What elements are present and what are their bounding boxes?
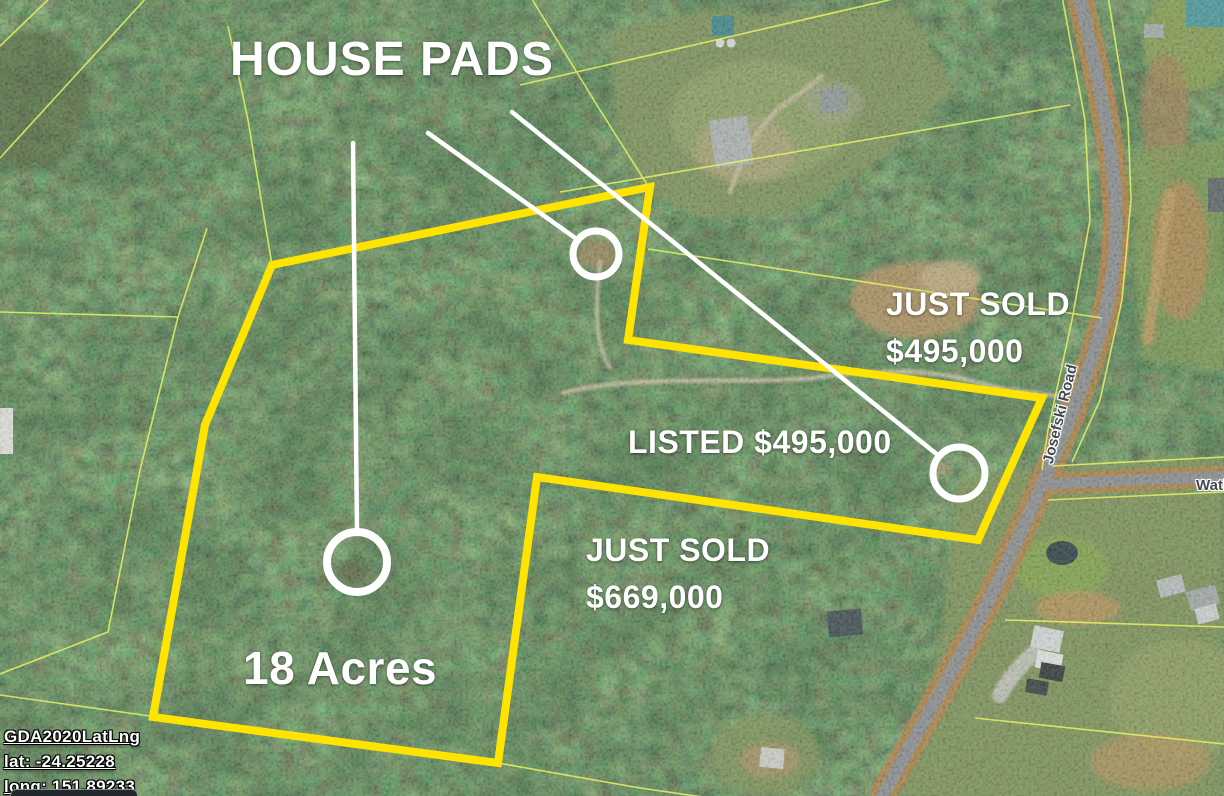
- annotation-just-sold-669k: JUST SOLD $669,000: [586, 527, 770, 621]
- annotation-listed-495k: LISTED $495,000: [628, 419, 892, 466]
- just-sold-669k-price: $669,000: [586, 574, 770, 621]
- just-sold-495k-line1: JUST SOLD: [886, 281, 1070, 328]
- annotation-acreage: 18 Acres: [243, 642, 437, 695]
- coordinate-overlay: GDA2020LatLng lat: -24.25228 long: 151.8…: [4, 727, 140, 796]
- just-sold-669k-line1: JUST SOLD: [586, 527, 770, 574]
- annotation-just-sold-495k: JUST SOLD $495,000: [886, 281, 1070, 375]
- aerial-imagery: [0, 0, 1224, 796]
- just-sold-495k-price: $495,000: [886, 328, 1070, 375]
- map-title: HOUSE PADS: [230, 32, 554, 87]
- coord-lat: lat: -24.25228: [4, 752, 140, 772]
- collapsed-panel[interactable]: [10, 789, 138, 796]
- aerial-map[interactable]: HOUSE PADS JUST SOLD $495,000 LISTED $49…: [0, 0, 1224, 796]
- coord-datum: GDA2020LatLng: [4, 727, 140, 747]
- road-label-watkins: Watki: [1196, 477, 1224, 494]
